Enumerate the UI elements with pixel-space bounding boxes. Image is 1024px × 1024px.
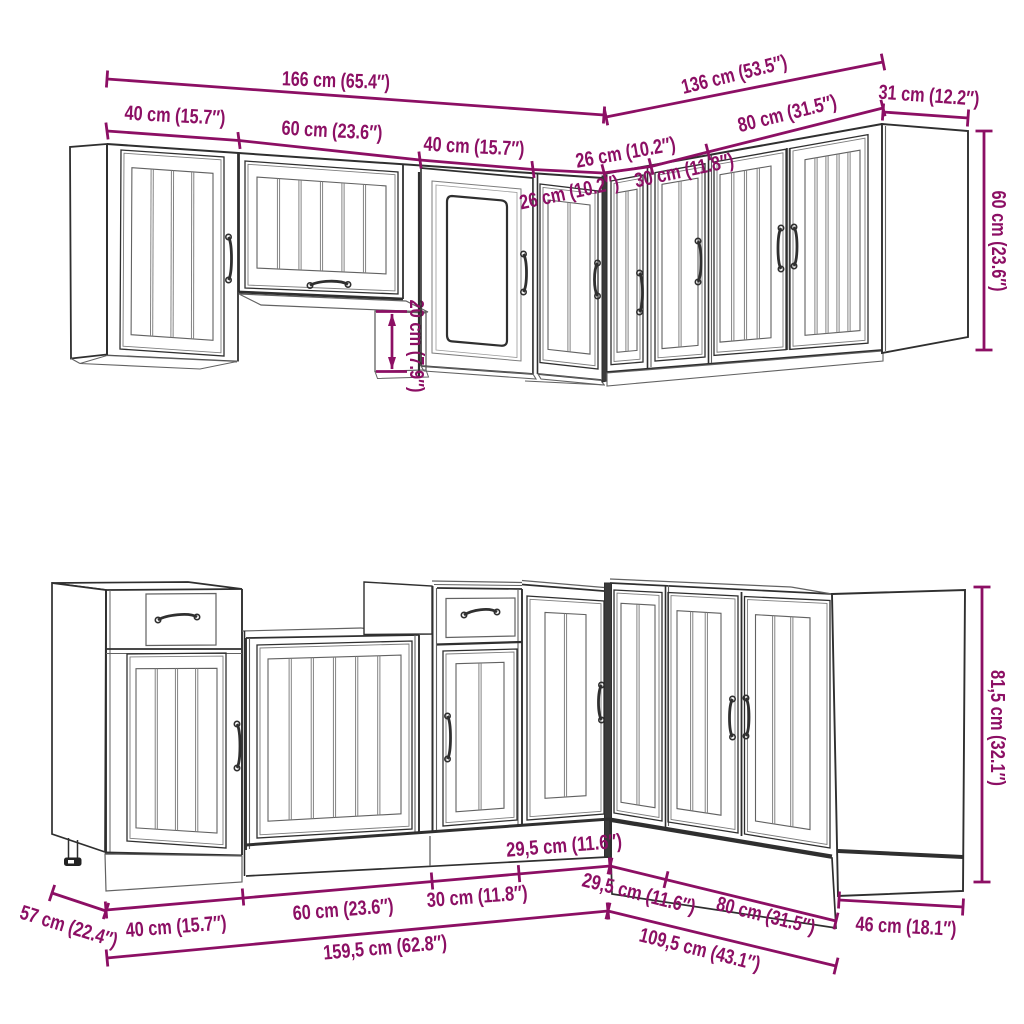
- svg-text:60 cm (23.6″): 60 cm (23.6″): [987, 191, 1010, 292]
- svg-text:81,5 cm (32.1″): 81,5 cm (32.1″): [986, 670, 1009, 786]
- svg-text:20 cm (7.9″): 20 cm (7.9″): [405, 300, 428, 393]
- svg-text:166 cm (65.4″): 166 cm (65.4″): [282, 67, 391, 94]
